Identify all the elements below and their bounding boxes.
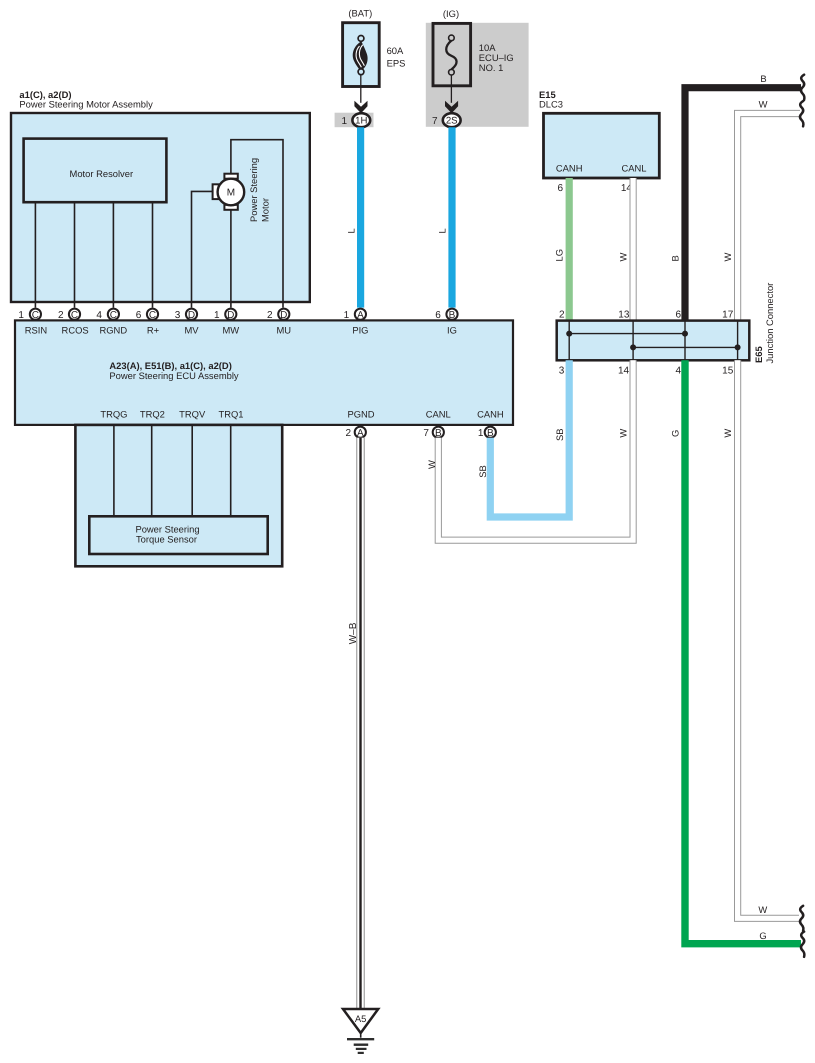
svg-text:R+: R+ bbox=[147, 325, 160, 336]
svg-text:Torque Sensor: Torque Sensor bbox=[136, 534, 197, 545]
svg-text:A: A bbox=[357, 310, 364, 321]
svg-text:PGND: PGND bbox=[347, 408, 374, 419]
svg-text:2: 2 bbox=[58, 310, 64, 321]
svg-text:3: 3 bbox=[559, 366, 565, 377]
svg-text:2: 2 bbox=[559, 310, 565, 321]
svg-text:(BAT): (BAT) bbox=[348, 8, 372, 19]
svg-text:4: 4 bbox=[96, 310, 102, 321]
svg-text:13: 13 bbox=[618, 310, 630, 321]
svg-text:L: L bbox=[345, 228, 356, 233]
svg-text:3: 3 bbox=[175, 310, 181, 321]
svg-text:(IG): (IG) bbox=[443, 8, 459, 19]
svg-text:DLC3: DLC3 bbox=[539, 99, 563, 110]
svg-text:B: B bbox=[669, 255, 680, 261]
svg-text:E65: E65 bbox=[753, 346, 764, 363]
svg-text:1: 1 bbox=[214, 310, 220, 321]
svg-text:7: 7 bbox=[423, 428, 429, 439]
svg-text:14: 14 bbox=[618, 366, 630, 377]
svg-text:M: M bbox=[227, 188, 235, 199]
svg-text:SB: SB bbox=[554, 428, 565, 441]
svg-text:D: D bbox=[227, 310, 234, 321]
svg-text:RSIN: RSIN bbox=[25, 325, 47, 336]
svg-text:A: A bbox=[357, 428, 364, 439]
svg-text:Motor: Motor bbox=[260, 198, 271, 222]
svg-text:7: 7 bbox=[432, 116, 438, 127]
svg-text:CANL: CANL bbox=[426, 408, 451, 419]
svg-text:1: 1 bbox=[341, 116, 347, 127]
svg-text:W–B: W–B bbox=[348, 622, 359, 644]
svg-text:1: 1 bbox=[478, 428, 484, 439]
svg-text:C: C bbox=[32, 310, 39, 321]
svg-text:C: C bbox=[110, 310, 117, 321]
svg-text:W: W bbox=[618, 253, 629, 262]
svg-text:Power Steering Motor Assembly: Power Steering Motor Assembly bbox=[19, 99, 153, 110]
svg-text:RCOS: RCOS bbox=[62, 325, 89, 336]
svg-text:2: 2 bbox=[345, 428, 351, 439]
svg-text:LG: LG bbox=[554, 249, 565, 262]
svg-text:1: 1 bbox=[18, 310, 24, 321]
svg-text:D: D bbox=[188, 310, 195, 321]
svg-text:6: 6 bbox=[675, 310, 681, 321]
svg-text:W: W bbox=[618, 429, 629, 438]
svg-text:PIG: PIG bbox=[352, 325, 368, 336]
svg-text:RGND: RGND bbox=[99, 325, 127, 336]
svg-text:EPS: EPS bbox=[387, 58, 406, 69]
svg-text:C: C bbox=[149, 310, 156, 321]
svg-text:W: W bbox=[758, 904, 767, 915]
svg-text:B: B bbox=[760, 73, 766, 84]
svg-text:Power Steering ECU Assembly: Power Steering ECU Assembly bbox=[109, 370, 239, 381]
svg-text:W: W bbox=[759, 99, 768, 110]
svg-text:Junction Connector: Junction Connector bbox=[764, 283, 775, 364]
svg-text:60A: 60A bbox=[387, 45, 404, 56]
svg-text:CANL: CANL bbox=[621, 163, 646, 174]
svg-text:SB: SB bbox=[477, 465, 488, 478]
svg-text:TRQ2: TRQ2 bbox=[140, 408, 165, 419]
svg-text:TRQ1: TRQ1 bbox=[218, 408, 243, 419]
svg-text:6: 6 bbox=[435, 310, 441, 321]
svg-text:6: 6 bbox=[557, 183, 563, 194]
svg-text:B: B bbox=[487, 428, 494, 439]
svg-text:TRQG: TRQG bbox=[100, 408, 127, 419]
svg-text:MW: MW bbox=[222, 325, 239, 336]
svg-text:W: W bbox=[722, 429, 733, 438]
svg-text:Power Steering: Power Steering bbox=[248, 158, 259, 222]
svg-text:G: G bbox=[759, 930, 766, 941]
svg-text:G: G bbox=[670, 430, 681, 437]
svg-text:6: 6 bbox=[136, 310, 142, 321]
svg-text:2S: 2S bbox=[446, 116, 458, 127]
svg-text:IG: IG bbox=[447, 325, 457, 336]
svg-text:B: B bbox=[435, 428, 442, 439]
svg-text:NO. 1: NO. 1 bbox=[479, 62, 504, 73]
svg-text:CANH: CANH bbox=[556, 163, 583, 174]
svg-text:D: D bbox=[280, 310, 287, 321]
svg-text:1: 1 bbox=[344, 310, 350, 321]
svg-text:CANH: CANH bbox=[477, 408, 504, 419]
svg-text:A5: A5 bbox=[355, 1013, 366, 1024]
svg-text:15: 15 bbox=[722, 366, 734, 377]
svg-text:MV: MV bbox=[184, 325, 199, 336]
svg-text:2: 2 bbox=[267, 310, 273, 321]
svg-text:1H: 1H bbox=[355, 116, 367, 127]
svg-text:C: C bbox=[71, 310, 78, 321]
svg-text:17: 17 bbox=[722, 310, 734, 321]
svg-text:L: L bbox=[437, 228, 448, 233]
svg-text:B: B bbox=[449, 310, 456, 321]
svg-text:W: W bbox=[722, 253, 733, 262]
svg-text:Motor Resolver: Motor Resolver bbox=[70, 168, 134, 179]
svg-text:W: W bbox=[426, 460, 437, 469]
svg-text:TRQV: TRQV bbox=[179, 408, 206, 419]
svg-text:MU: MU bbox=[277, 325, 292, 336]
svg-text:4: 4 bbox=[675, 366, 681, 377]
